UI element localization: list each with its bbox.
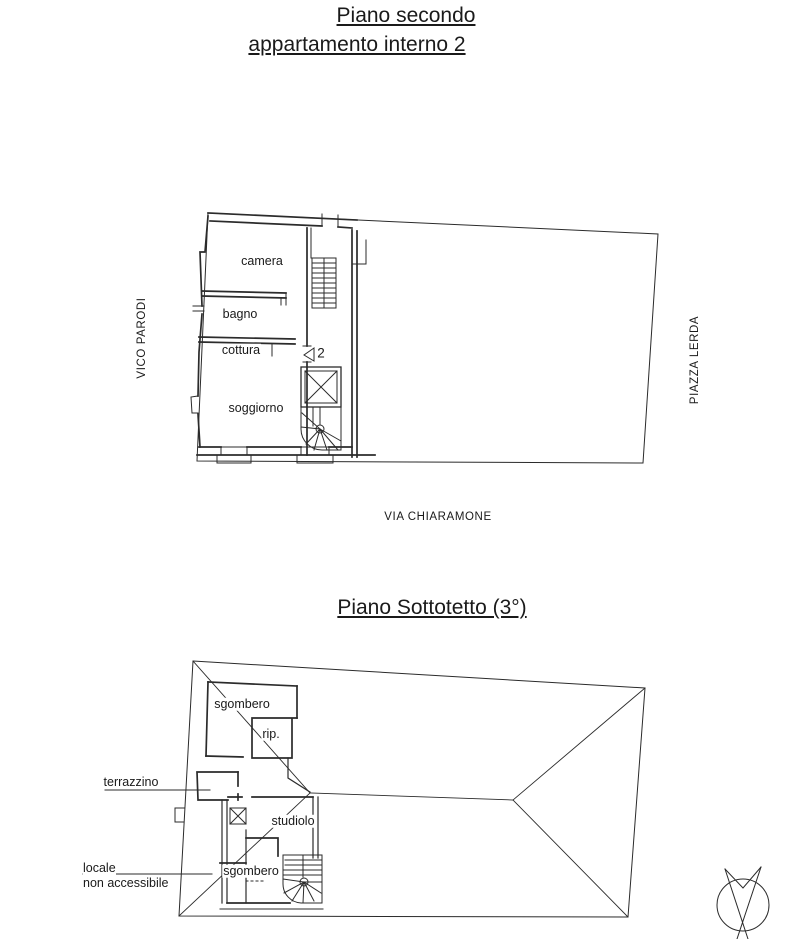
room-label-sgombero-top: sgombero [213,698,271,711]
staircase-straight [312,258,336,308]
room-label-cottura: cottura [221,344,261,357]
room-label-sgombero-bottom: sgombero [222,865,280,878]
plan-linework [0,0,799,939]
staircase-spiral-lower [283,855,322,903]
room-label-terrazzino: terrazzino [103,776,160,789]
unit-number-label: 2 [317,346,325,361]
room-label-locale-line2: non accessibile [83,877,168,890]
street-label-via-chiaramone: VIA CHIARAMONE [384,511,491,523]
street-label-vico-parodi: VICO PARODI [136,297,148,378]
floorplan-document: Piano secondo appartamento interno 2 cam… [0,0,799,939]
upper-plan-drawing [191,213,658,463]
room-label-camera: camera [240,255,284,268]
room-label-rip: rip. [261,728,280,741]
room-label-bagno: bagno [222,308,259,321]
lower-plan-title: Piano Sottotetto (3°) [337,595,526,620]
upper-plan-title-line2: appartamento interno 2 [248,32,465,57]
north-arrow-icon [717,867,769,939]
room-label-studiolo: studiolo [270,815,315,828]
elevator-shaft-lower [230,808,246,824]
room-label-locale-line1: locale [83,862,116,875]
entrance-arrow-icon [304,348,314,361]
upper-plan-title-line1: Piano secondo [337,3,476,28]
street-label-piazza-lerda: PIAZZA LERDA [689,316,701,404]
room-label-soggiorno: soggiorno [228,402,285,415]
